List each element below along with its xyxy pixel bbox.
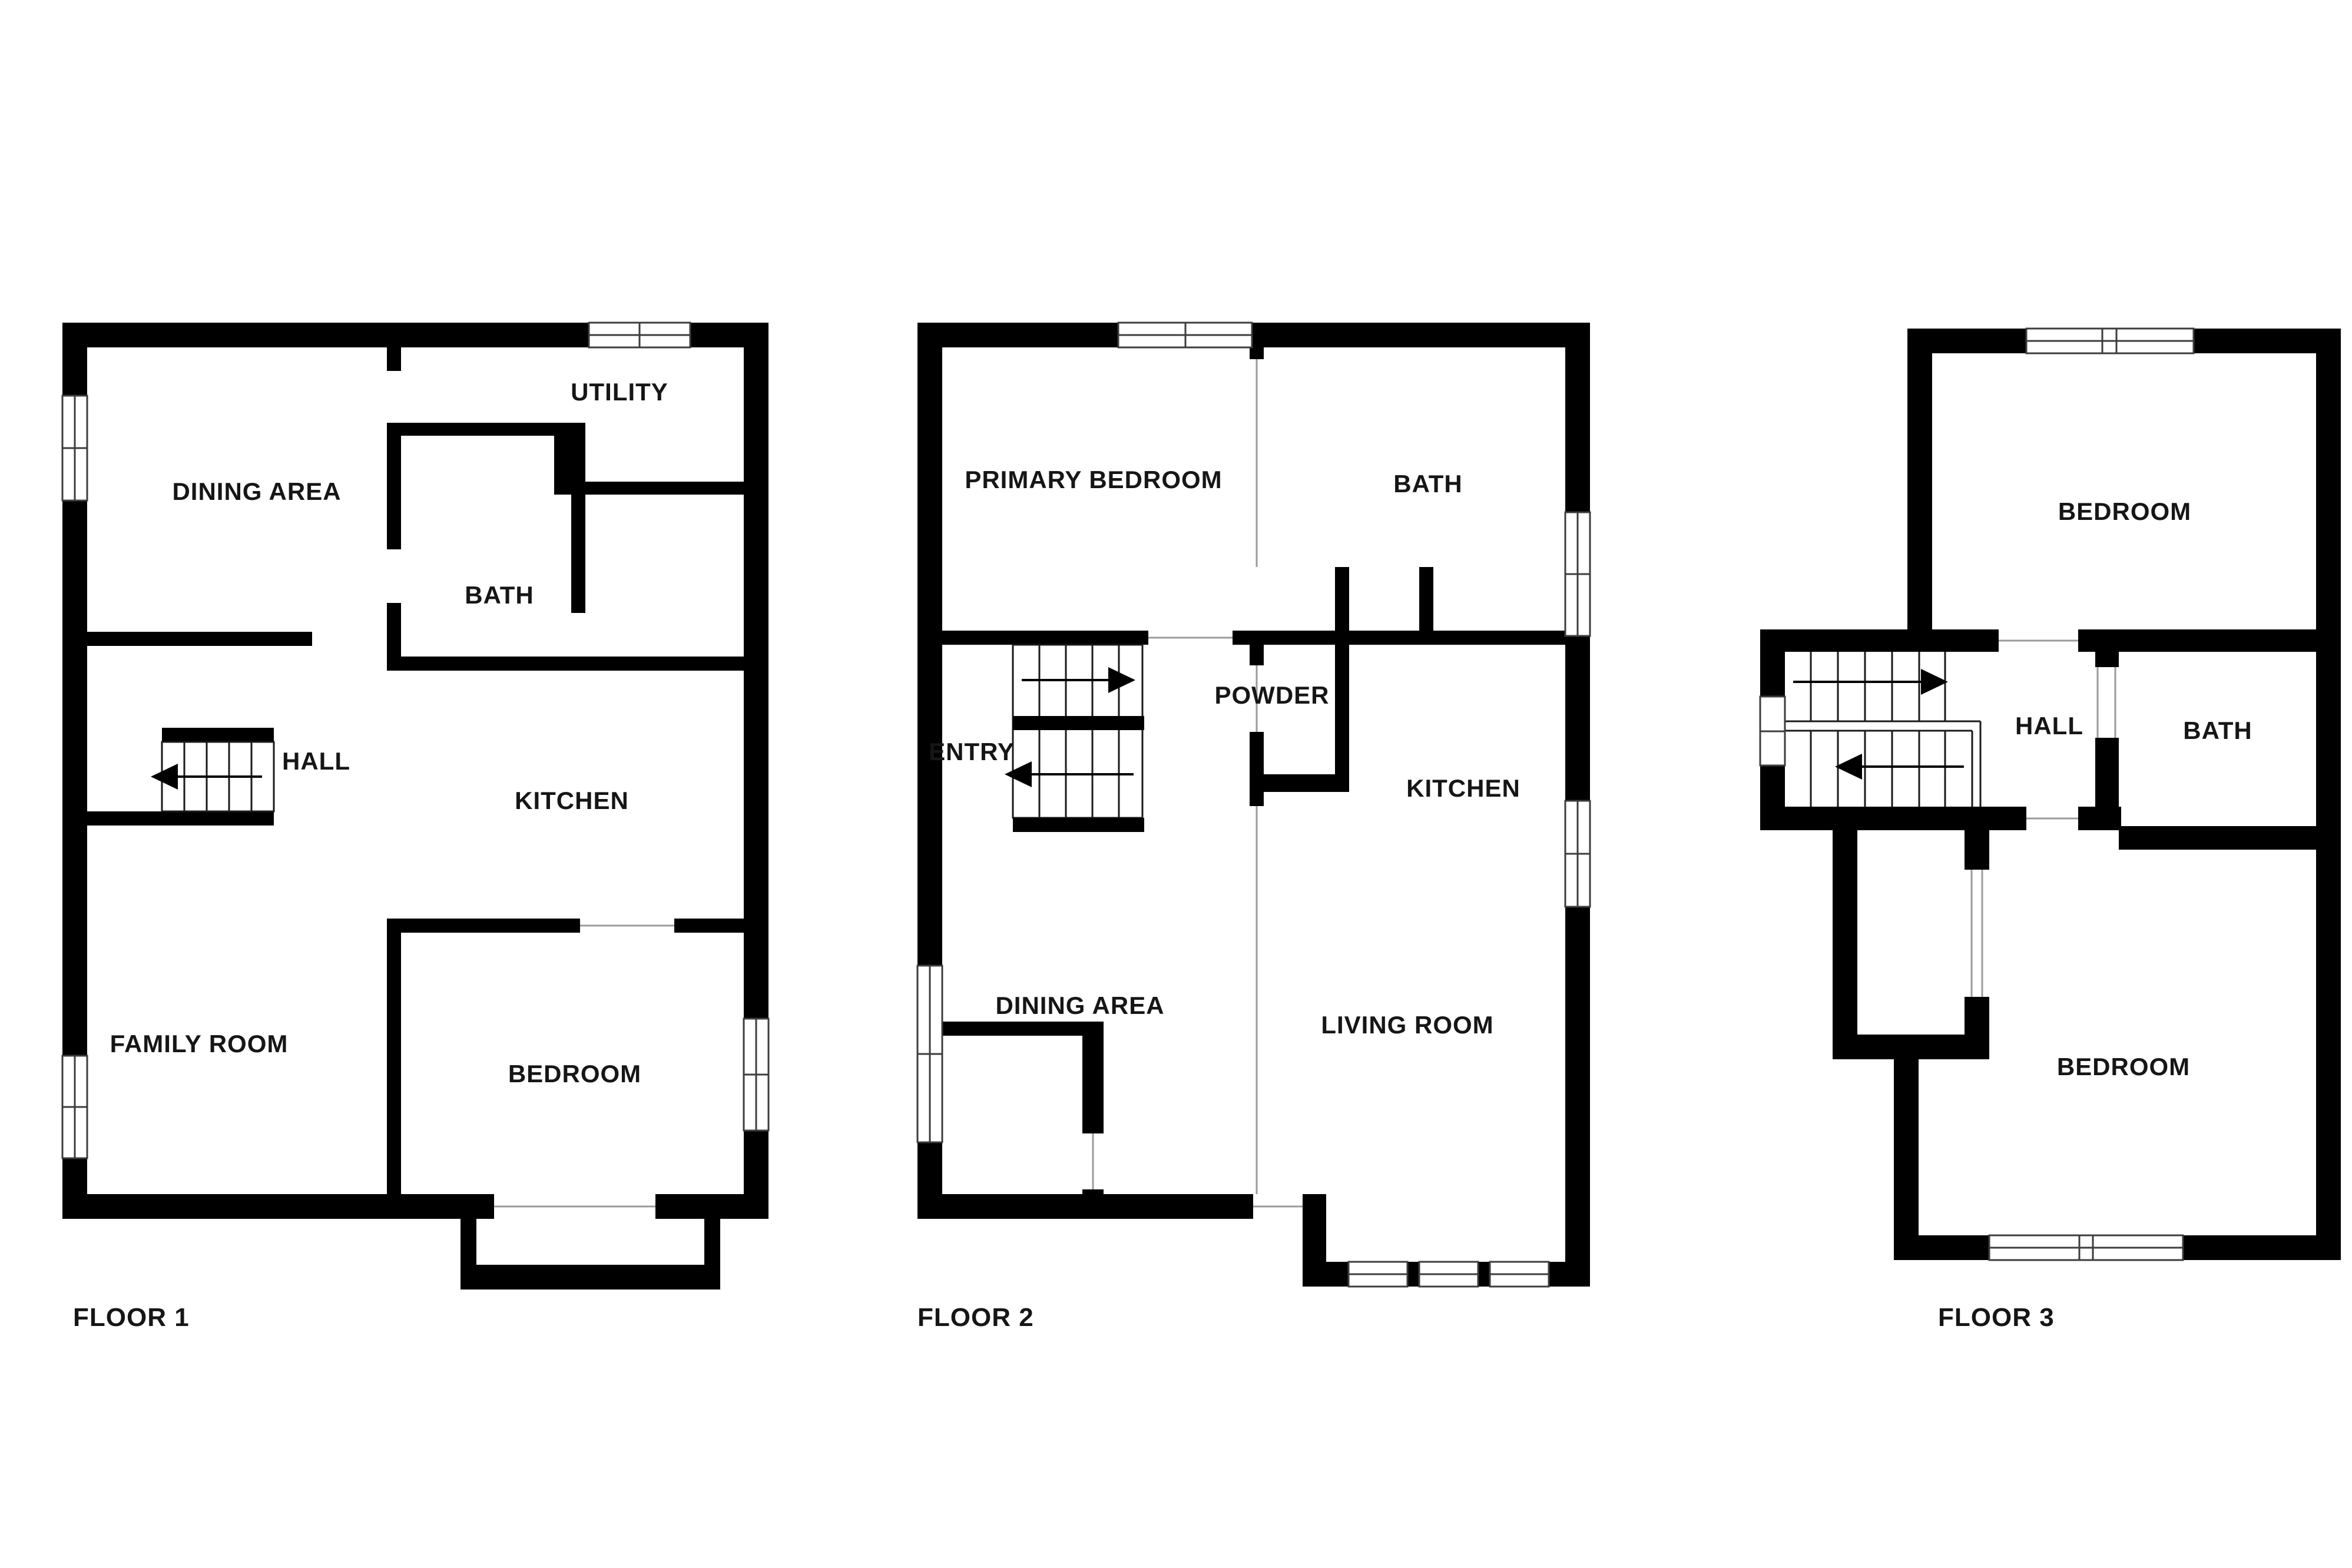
floor-3-plan: BEDROOM HALL BATH BEDROOM FLOOR 3	[1760, 329, 2341, 1332]
floor-3-stairs	[1785, 652, 1980, 807]
stair-down-arrow-icon	[1835, 754, 1862, 780]
room-label-bedroom-upper: BEDROOM	[2058, 498, 2191, 525]
floor-2-plan: PRIMARY BEDROOM BATH ENTRY POWDER KITCHE…	[917, 323, 1590, 1332]
room-label-bedroom: BEDROOM	[508, 1060, 641, 1088]
room-label-dining-area: DINING AREA	[995, 992, 1164, 1019]
floor-3-title: FLOOR 3	[1938, 1303, 2055, 1332]
floor-1-plan: DINING AREA UTILITY BATH HALL KITCHEN FA…	[62, 323, 768, 1332]
room-label-utility: UTILITY	[571, 378, 668, 406]
room-label-bath: BATH	[465, 581, 534, 609]
stair-down-arrow-icon	[151, 764, 178, 790]
room-label-kitchen: KITCHEN	[515, 787, 629, 814]
room-label-living-room: LIVING ROOM	[1321, 1011, 1493, 1039]
room-label-bedroom-lower: BEDROOM	[2057, 1053, 2190, 1080]
floor-plan-drawing: DINING AREA UTILITY BATH HALL KITCHEN FA…	[0, 0, 2352, 1568]
floor-plan-canvas: DINING AREA UTILITY BATH HALL KITCHEN FA…	[0, 0, 2352, 1568]
floor-1-stairs	[151, 728, 274, 811]
floor-1-title: FLOOR 1	[73, 1303, 190, 1332]
floor-3-windows	[1760, 329, 2194, 1260]
room-label-dining-area: DINING AREA	[172, 478, 341, 505]
room-label-family-room: FAMILY ROOM	[110, 1030, 289, 1058]
room-label-powder: POWDER	[1215, 681, 1330, 709]
floor-3-walls	[1760, 329, 2341, 1260]
room-label-bath: BATH	[2183, 717, 2252, 744]
room-label-entry: ENTRY	[929, 738, 1015, 765]
room-label-primary-bedroom: PRIMARY BEDROOM	[965, 466, 1222, 493]
room-label-bath: BATH	[1393, 470, 1463, 498]
room-label-hall: HALL	[282, 747, 350, 775]
room-label-kitchen: KITCHEN	[1406, 774, 1520, 802]
floor-2-stairs	[1005, 645, 1144, 832]
floor-3-labels: BEDROOM HALL BATH BEDROOM FLOOR 3	[1938, 498, 2252, 1332]
floor-2-title: FLOOR 2	[917, 1303, 1034, 1332]
room-label-hall: HALL	[2015, 712, 2083, 740]
stair-up-arrow-icon	[1921, 669, 1948, 695]
stair-up-arrow-icon	[1108, 667, 1135, 693]
floor-1-walls	[62, 323, 768, 1289]
